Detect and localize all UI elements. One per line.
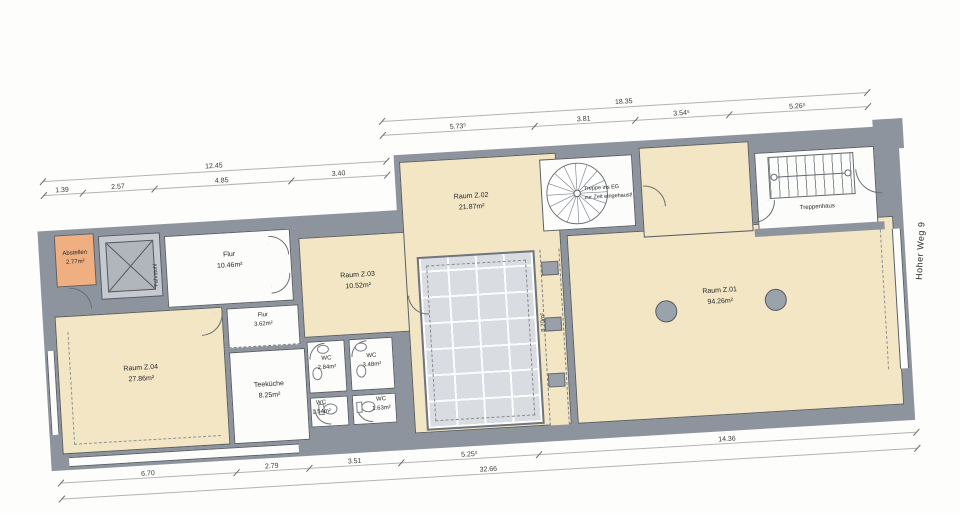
dim-tick — [913, 429, 920, 436]
skylight-inner-dashes — [426, 260, 535, 422]
room-wc-163-label: WC 1.63m² — [364, 394, 399, 415]
floor-plan-page: Abstellen 2.77m² Fahrstuhl Flur 10.46m² … — [0, 0, 960, 513]
room-area: 1.54m² — [306, 407, 336, 418]
dim-tick — [864, 89, 871, 96]
dim-segment: 5.73⁵ — [448, 123, 469, 131]
room-z01 — [567, 216, 905, 424]
dim-segment: 5.26⁵ — [787, 103, 808, 111]
elevator-label: Fahrstuhl — [153, 263, 160, 286]
glass-block — [548, 373, 566, 388]
dim-segment: 2.79 — [263, 463, 281, 471]
skylight-grid — [417, 250, 545, 431]
dim-total-top-left: 12.45 — [203, 162, 225, 170]
dim-tick — [383, 158, 390, 165]
floor-plan: Abstellen 2.77m² Fahrstuhl Flur 10.46m² … — [31, 69, 943, 521]
room-wc-348-label: WC 3.48m² — [348, 351, 395, 372]
dim-tick — [384, 172, 391, 179]
dim-segment: 3.51 — [346, 458, 364, 466]
dim-segment: 4.85 — [213, 177, 231, 185]
street-name-label: Hoher Weg 9 — [914, 221, 927, 280]
dim-tick — [914, 445, 921, 452]
room-abstellen-label: Abstellen 2.77m² — [51, 248, 100, 269]
dim-segment: 14.36 — [716, 435, 738, 443]
dim-total-top-right: 18.35 — [613, 98, 635, 106]
dim-segment: 2.57 — [109, 183, 127, 191]
stair-note: Treppe ins EG zur Zeit eingehaust! — [584, 182, 637, 204]
dim-segment: 5.25⁵ — [459, 451, 480, 459]
dim-total-bottom: 32.66 — [477, 466, 499, 474]
lightwell-area-label: 8.70m² — [540, 313, 547, 332]
dim-segment: 3.40 — [330, 170, 348, 178]
glass-block — [541, 261, 559, 276]
wall-corner-top-right — [872, 118, 904, 150]
elevator-x-icon — [106, 241, 155, 292]
room-wc-284-label: WC 2.84m² — [304, 353, 349, 374]
dim-tick — [865, 103, 872, 110]
dim-segment: 3.54⁵ — [671, 110, 692, 118]
dim-segment: 1.39 — [53, 187, 71, 195]
room-flur-362-label: Flur 3.62m² — [231, 309, 296, 331]
room-wc-154-label: WC 1.54m² — [306, 398, 337, 418]
dim-segment: 3.81 — [575, 115, 593, 123]
elevator-cross — [105, 240, 156, 293]
dim-segment: 6.70 — [139, 470, 157, 478]
